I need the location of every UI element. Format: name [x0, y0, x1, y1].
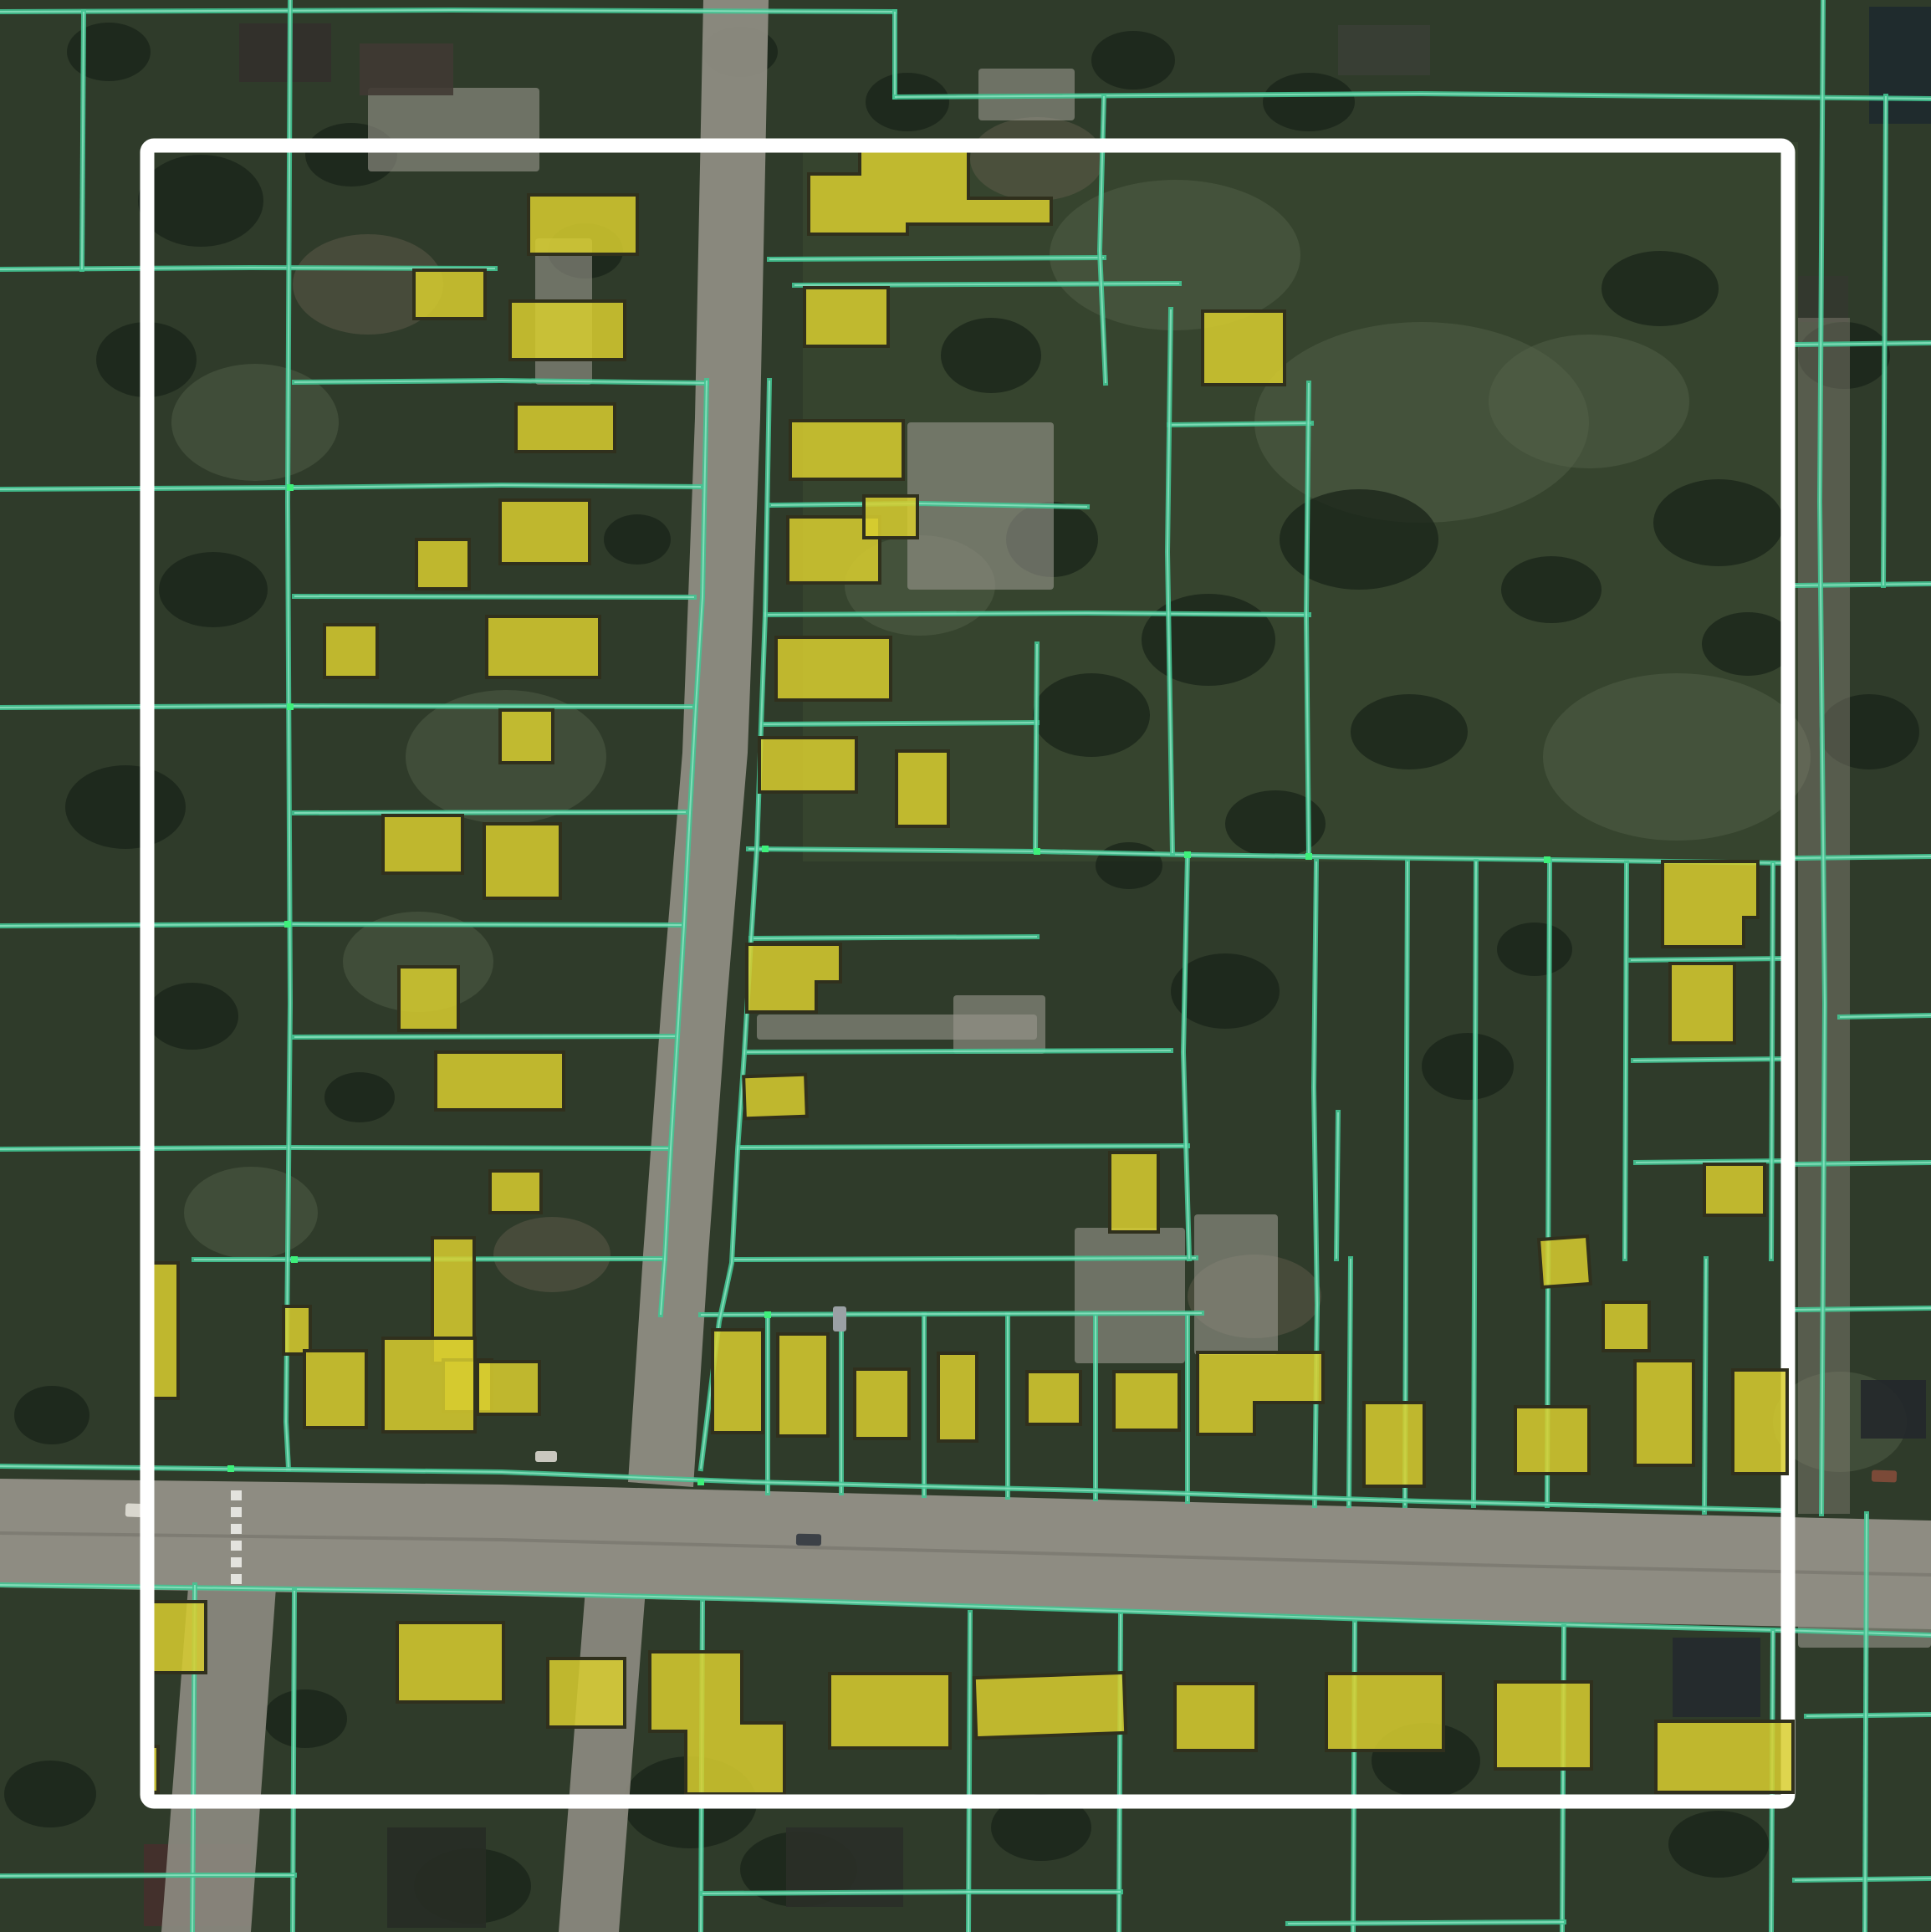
building-footprint[interactable] — [864, 496, 917, 538]
tree-canopy — [1351, 694, 1468, 769]
building-footprint[interactable] — [510, 301, 625, 360]
unlabeled-building — [360, 43, 453, 95]
building-footprint[interactable] — [500, 710, 553, 763]
vehicle — [833, 1306, 846, 1331]
building-footprint[interactable] — [1515, 1407, 1589, 1474]
grass-patch — [1543, 673, 1811, 841]
building-footprint[interactable] — [324, 625, 377, 677]
building-footprint[interactable] — [304, 1351, 366, 1428]
tree-canopy — [159, 552, 268, 627]
parcel-line-highlight — [294, 596, 694, 597]
dirt-patch — [493, 1217, 610, 1292]
tree-canopy — [604, 514, 671, 565]
tree-canopy — [14, 1386, 89, 1444]
building-footprint[interactable] — [414, 270, 485, 319]
tree-canopy — [1142, 594, 1275, 686]
dirt-patch — [970, 117, 1104, 201]
building-footprint[interactable] — [383, 815, 462, 873]
unlabeled-building — [387, 1827, 486, 1928]
building-footprint[interactable] — [500, 500, 590, 564]
building-footprint[interactable] — [1733, 1370, 1787, 1474]
tree-canopy — [941, 318, 1041, 393]
tree-canopy — [1702, 612, 1794, 676]
building-footprint[interactable] — [436, 1052, 564, 1110]
building-footprint[interactable] — [399, 967, 458, 1030]
parcel-node — [284, 921, 291, 928]
tree-canopy — [67, 23, 151, 81]
tree-canopy — [1653, 479, 1784, 566]
building-footprint[interactable] — [790, 421, 903, 479]
building-footprint[interactable] — [1704, 1164, 1765, 1215]
building-footprint[interactable] — [1635, 1361, 1693, 1465]
tree-canopy — [1280, 489, 1438, 590]
building-footprint[interactable] — [1656, 1721, 1793, 1792]
parcel-node — [764, 1311, 771, 1318]
building-footprint[interactable] — [516, 404, 615, 452]
unlabeled-building — [1673, 1638, 1760, 1717]
building-footprint[interactable] — [1539, 1236, 1591, 1287]
crosswalk-dash — [231, 1524, 242, 1534]
grass-patch — [184, 1167, 318, 1259]
parcel-line-highlight — [194, 1259, 665, 1260]
building-footprint[interactable] — [1114, 1372, 1179, 1430]
building-footprint[interactable] — [1495, 1682, 1591, 1769]
tree-canopy — [4, 1761, 96, 1827]
parcel-line-highlight — [0, 1875, 294, 1876]
building-footprint[interactable] — [1027, 1372, 1080, 1424]
parcel-node — [1184, 851, 1191, 858]
tree-canopy — [263, 1689, 347, 1748]
building-footprint[interactable] — [147, 1602, 206, 1673]
building-footprint[interactable] — [478, 1362, 539, 1414]
aerial-map-canvas[interactable] — [0, 0, 1931, 1932]
building-footprint[interactable] — [743, 1075, 807, 1119]
driveway-pad — [953, 995, 1045, 1054]
building-footprint[interactable] — [759, 738, 856, 792]
crosswalk-dash — [231, 1541, 242, 1551]
building-footprint[interactable] — [778, 1334, 828, 1436]
grass-patch — [1050, 180, 1300, 330]
building-footprint[interactable] — [529, 195, 637, 254]
parcel-node — [697, 1479, 704, 1485]
driveway-pad — [1075, 1228, 1185, 1363]
parcel-node — [762, 846, 769, 852]
tree-canopy — [1422, 1033, 1514, 1100]
building-footprint[interactable] — [974, 1673, 1126, 1738]
crosswalk-dash — [231, 1557, 242, 1567]
building-footprint[interactable] — [487, 616, 600, 677]
parcel-node — [1305, 853, 1312, 860]
parcel-node — [227, 1465, 234, 1472]
building-footprint[interactable] — [938, 1353, 977, 1441]
vehicle — [796, 1534, 821, 1546]
parcel-node — [287, 484, 294, 491]
building-footprint[interactable] — [1326, 1674, 1443, 1751]
unlabeled-building — [1338, 25, 1430, 75]
tree-canopy — [1497, 923, 1572, 976]
unlabeled-building — [1861, 1380, 1926, 1439]
building-footprint[interactable] — [830, 1674, 950, 1748]
building-footprint[interactable] — [1670, 963, 1734, 1043]
tree-canopy — [65, 765, 186, 849]
building-footprint[interactable] — [484, 824, 560, 898]
parcel-node — [291, 1256, 298, 1263]
building-footprint[interactable] — [383, 1338, 475, 1432]
parcel-node — [287, 703, 294, 710]
building-footprint[interactable] — [897, 751, 948, 826]
tree-canopy — [138, 155, 263, 247]
tree-canopy — [1033, 673, 1150, 757]
tree-canopy — [1091, 31, 1175, 89]
grass-patch — [1489, 335, 1689, 468]
crosswalk-dash — [231, 1490, 242, 1500]
tree-canopy — [866, 73, 949, 131]
vehicle — [1872, 1469, 1897, 1482]
parcel-line-highlight — [294, 1036, 677, 1037]
building-footprint[interactable] — [1603, 1302, 1649, 1351]
tree-canopy — [1263, 73, 1355, 131]
building-footprint[interactable] — [855, 1369, 909, 1439]
crosswalk-dash — [231, 1507, 242, 1517]
driveway-pad — [368, 88, 539, 171]
building-footprint[interactable] — [1663, 861, 1758, 947]
building-footprint[interactable] — [284, 1306, 310, 1354]
vehicle — [535, 1451, 557, 1462]
tree-canopy — [1668, 1811, 1769, 1878]
tree-canopy — [146, 983, 238, 1050]
parcel-node — [1544, 856, 1550, 863]
unlabeled-building — [1869, 7, 1931, 124]
building-footprint[interactable] — [397, 1623, 503, 1702]
driveway-pad — [1194, 1214, 1278, 1355]
building-footprint[interactable] — [490, 1171, 541, 1213]
building-footprint[interactable] — [416, 539, 469, 589]
building-footprint[interactable] — [805, 288, 888, 346]
crosswalk-dash — [231, 1574, 242, 1584]
building-footprint[interactable] — [1203, 311, 1285, 385]
building-footprint[interactable] — [713, 1330, 763, 1433]
tree-canopy — [1501, 556, 1602, 623]
tree-canopy — [1602, 251, 1719, 326]
building-footprint[interactable] — [1110, 1153, 1158, 1232]
building-footprint[interactable] — [548, 1659, 625, 1727]
parcel-node — [1034, 848, 1040, 855]
map-svg[interactable] — [0, 0, 1931, 1932]
tree-canopy — [324, 1072, 395, 1122]
building-footprint[interactable] — [1175, 1684, 1256, 1751]
building-footprint[interactable] — [1364, 1403, 1424, 1486]
tree-canopy — [1096, 842, 1162, 889]
unlabeled-building — [239, 23, 331, 82]
parcel-line-highlight — [294, 812, 686, 813]
building-footprint[interactable] — [776, 637, 891, 700]
